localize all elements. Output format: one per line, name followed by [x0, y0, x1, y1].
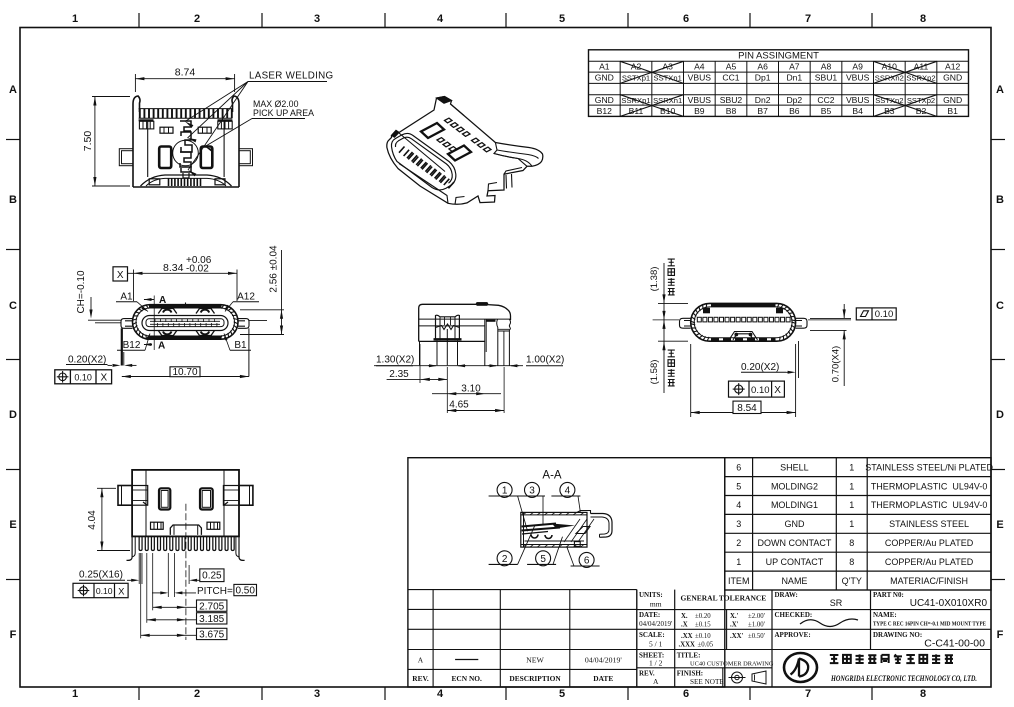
svg-text:3: 3 — [529, 486, 535, 497]
svg-text:±0.05: ±0.05 — [697, 642, 713, 649]
svg-text:PITCH=: PITCH= — [197, 586, 233, 597]
svg-text:mm: mm — [650, 600, 662, 609]
svg-text:1.00(X2): 1.00(X2) — [526, 355, 564, 366]
svg-text:2: 2 — [736, 538, 741, 548]
svg-text:4.65: 4.65 — [449, 399, 469, 410]
svg-text:CH=-0.10: CH=-0.10 — [76, 270, 87, 314]
svg-text:.X: .X — [681, 622, 688, 629]
svg-text:X: X — [118, 586, 125, 597]
svg-text:-0.02: -0.02 — [186, 263, 209, 274]
svg-text:MOLDING1: MOLDING1 — [771, 500, 818, 510]
svg-text:3.675: 3.675 — [199, 630, 224, 641]
svg-text:04/04/2019': 04/04/2019' — [585, 656, 623, 665]
svg-text:8: 8 — [849, 538, 854, 548]
svg-text:6: 6 — [683, 13, 689, 25]
svg-text:GND: GND — [943, 95, 962, 105]
svg-text:GENERAL TOLERANCE: GENERAL TOLERANCE — [681, 594, 767, 603]
svg-text:1.30(X2): 1.30(X2) — [376, 354, 414, 365]
svg-text:MOLDING2: MOLDING2 — [771, 481, 818, 491]
svg-text:5: 5 — [559, 13, 565, 25]
svg-text:F: F — [10, 629, 17, 641]
svg-text:A5: A5 — [726, 62, 737, 72]
svg-text:A-A: A-A — [542, 470, 562, 482]
svg-text:Dp2: Dp2 — [786, 95, 802, 105]
svg-text:SR: SR — [830, 598, 843, 608]
svg-text:8: 8 — [920, 13, 926, 25]
svg-text:4.04: 4.04 — [87, 510, 98, 530]
svg-text:C: C — [996, 300, 1004, 312]
svg-text:B1: B1 — [234, 340, 247, 351]
svg-text:DATE:: DATE: — [639, 611, 660, 619]
svg-text:0.50: 0.50 — [235, 585, 255, 596]
svg-text:2.35: 2.35 — [389, 369, 409, 380]
svg-text:VBUS: VBUS — [688, 73, 712, 83]
svg-text:UC40 CUSTOMER DRAWING: UC40 CUSTOMER DRAWING — [690, 661, 774, 668]
svg-text:B12: B12 — [597, 106, 613, 116]
svg-text:GND: GND — [943, 73, 962, 83]
svg-text:D: D — [9, 409, 17, 421]
svg-text:B4: B4 — [852, 106, 863, 116]
svg-text:SEE NOTE: SEE NOTE — [690, 678, 724, 686]
svg-text:8.54: 8.54 — [737, 403, 757, 414]
svg-text:E: E — [9, 519, 16, 531]
svg-text:GND: GND — [784, 519, 805, 529]
svg-text:SBU2: SBU2 — [720, 95, 743, 105]
svg-text:1: 1 — [72, 688, 78, 700]
svg-text:1: 1 — [849, 519, 854, 529]
svg-text:X.: X. — [681, 613, 688, 620]
svg-text:A: A — [159, 295, 166, 306]
svg-text:COPPER/Au PLATED: COPPER/Au PLATED — [885, 557, 974, 567]
svg-text:VBUS: VBUS — [846, 73, 870, 83]
svg-text:B1: B1 — [947, 106, 958, 116]
svg-text:A6: A6 — [757, 62, 768, 72]
svg-text:0.10: 0.10 — [751, 385, 770, 396]
svg-text:0.10: 0.10 — [74, 372, 92, 382]
svg-text:6: 6 — [584, 556, 590, 567]
svg-text:B8: B8 — [726, 106, 737, 116]
svg-text:A: A — [418, 655, 424, 664]
svg-text:.XX': .XX' — [730, 633, 744, 640]
svg-text:1: 1 — [736, 557, 741, 567]
svg-text:HONGRIDA ELECTRONIC TECHNOLOGY: HONGRIDA ELECTRONIC TECHNOLOGY CO, LTD. — [830, 674, 977, 683]
svg-text:Dn1: Dn1 — [786, 73, 802, 83]
svg-text:1: 1 — [849, 462, 854, 472]
svg-text:A12: A12 — [237, 291, 255, 302]
svg-text:PICK UP AREA: PICK UP AREA — [253, 108, 314, 118]
svg-text:8.34: 8.34 — [163, 262, 184, 274]
svg-text:GND: GND — [595, 73, 614, 83]
svg-text:Dn2: Dn2 — [755, 95, 771, 105]
svg-text:DOWN CONTACT: DOWN CONTACT — [758, 538, 832, 548]
svg-text:REV.: REV. — [412, 674, 429, 683]
svg-text:A: A — [996, 84, 1004, 96]
svg-text:DRAWING NO:: DRAWING NO: — [873, 631, 922, 639]
svg-text:C: C — [9, 300, 17, 312]
svg-text:±0.50': ±0.50' — [748, 633, 765, 640]
svg-text:.XXX: .XXX — [678, 642, 695, 649]
svg-text:A8: A8 — [821, 62, 832, 72]
svg-text:DATE: DATE — [593, 674, 613, 683]
svg-text:VBUS: VBUS — [688, 95, 712, 105]
svg-text:±2.00': ±2.00' — [748, 613, 765, 620]
svg-text:MATERIAC/FINISH: MATERIAC/FINISH — [890, 576, 968, 586]
svg-text:8: 8 — [849, 557, 854, 567]
svg-text:UP CONTACT: UP CONTACT — [766, 557, 824, 567]
svg-text:0.70(X4): 0.70(X4) — [830, 346, 841, 382]
svg-text:VBUS: VBUS — [846, 95, 870, 105]
svg-text:D: D — [996, 409, 1004, 421]
svg-text:LASER WELDING: LASER WELDING — [249, 70, 333, 81]
svg-text:4: 4 — [437, 688, 444, 700]
svg-text:A1: A1 — [599, 62, 610, 72]
svg-text:E: E — [996, 519, 1003, 531]
svg-text:.XX: .XX — [681, 633, 693, 640]
svg-text:FINISH:: FINISH: — [677, 670, 703, 678]
svg-text:5: 5 — [736, 481, 741, 491]
svg-text:8.74: 8.74 — [175, 66, 196, 78]
svg-text:2: 2 — [194, 688, 200, 700]
svg-text:0.10: 0.10 — [96, 586, 113, 596]
svg-text:0.25: 0.25 — [202, 571, 222, 582]
svg-text:3.185: 3.185 — [199, 614, 224, 625]
svg-text:7.50: 7.50 — [82, 131, 94, 152]
svg-text:±0.15: ±0.15 — [695, 622, 711, 629]
svg-text:NEW: NEW — [526, 656, 544, 665]
svg-text:GND: GND — [595, 95, 614, 105]
svg-text:0.25(X16): 0.25(X16) — [79, 569, 123, 580]
svg-text:TYPE C REC 16PIN CH=-0.1 MID M: TYPE C REC 16PIN CH=-0.1 MID MOUNT TYPE — [873, 622, 986, 628]
svg-text:X: X — [774, 385, 781, 396]
svg-text:THERMOPLASTIC UL94V-0: THERMOPLASTIC UL94V-0 — [871, 500, 988, 510]
svg-text:UC41-0X010XR0: UC41-0X010XR0 — [910, 598, 988, 609]
svg-text:±0.10: ±0.10 — [695, 633, 711, 640]
svg-text:ECN NO.: ECN NO. — [452, 674, 483, 683]
svg-text:6: 6 — [683, 688, 689, 700]
svg-text:DRAW:: DRAW: — [774, 591, 797, 599]
svg-text:SCALE:: SCALE: — [639, 631, 665, 639]
svg-text:B: B — [9, 194, 17, 206]
svg-text:Dp1: Dp1 — [755, 73, 771, 83]
svg-text:SHELL: SHELL — [780, 462, 809, 472]
svg-text:2: 2 — [194, 13, 200, 25]
svg-text:A7: A7 — [789, 62, 800, 72]
svg-text:6: 6 — [736, 462, 741, 472]
svg-text:COPPER/Au PLATED: COPPER/Au PLATED — [885, 538, 974, 548]
svg-text:2.705: 2.705 — [199, 601, 224, 612]
svg-text:1: 1 — [72, 13, 78, 25]
svg-text:DESCRIPTION: DESCRIPTION — [509, 674, 561, 683]
svg-text:10.70: 10.70 — [172, 367, 197, 378]
svg-text:F: F — [997, 629, 1004, 641]
svg-text:0.20(X2): 0.20(X2) — [68, 354, 106, 365]
svg-text:2: 2 — [502, 554, 508, 565]
svg-text:B12: B12 — [123, 340, 141, 351]
svg-text:CHECKED:: CHECKED: — [774, 611, 812, 619]
svg-text:1: 1 — [849, 481, 854, 491]
svg-text:A1: A1 — [120, 291, 133, 302]
svg-text:4: 4 — [736, 500, 741, 510]
svg-text:3: 3 — [314, 13, 320, 25]
svg-text:±0.20: ±0.20 — [695, 613, 711, 620]
svg-text:7: 7 — [805, 688, 811, 700]
svg-text:±1.00': ±1.00' — [748, 622, 765, 629]
svg-text:1 / 2: 1 / 2 — [649, 659, 663, 668]
svg-text:1: 1 — [849, 500, 854, 510]
svg-text:SBU1: SBU1 — [815, 73, 838, 83]
svg-text:(1.58): (1.58) — [649, 360, 660, 385]
svg-text:A9: A9 — [852, 62, 863, 72]
svg-text:Q'TY: Q'TY — [842, 576, 862, 586]
svg-text:A: A — [653, 677, 659, 686]
svg-text:8: 8 — [920, 688, 926, 700]
svg-text:NAME:: NAME: — [873, 611, 897, 619]
svg-text:4: 4 — [437, 13, 444, 25]
svg-text:7: 7 — [805, 13, 811, 25]
svg-text:APPROVE:: APPROVE: — [774, 631, 810, 639]
svg-text:STAINLESS STEEL/Ni PLATED: STAINLESS STEEL/Ni PLATED — [865, 462, 993, 472]
svg-text:ITEM: ITEM — [728, 576, 750, 586]
svg-text:STAINLESS STEEL: STAINLESS STEEL — [889, 519, 969, 529]
svg-text:4: 4 — [565, 486, 571, 497]
svg-text:B6: B6 — [789, 106, 800, 116]
svg-text:5 / 1: 5 / 1 — [649, 640, 663, 649]
svg-text:2.56 ±0.04: 2.56 ±0.04 — [269, 245, 280, 293]
svg-text:PART N0:: PART N0: — [873, 591, 904, 599]
svg-text:(1.38): (1.38) — [649, 267, 660, 292]
svg-text:PIN ASSINGMENT: PIN ASSINGMENT — [738, 50, 819, 61]
svg-text:A12: A12 — [945, 62, 961, 72]
svg-text:.X': .X' — [730, 622, 739, 629]
svg-text:3: 3 — [736, 519, 741, 529]
svg-text:NAME: NAME — [781, 576, 807, 586]
svg-text:B7: B7 — [757, 106, 768, 116]
svg-text:A4: A4 — [694, 62, 705, 72]
svg-text:1: 1 — [502, 486, 508, 497]
svg-text:B5: B5 — [821, 106, 832, 116]
svg-text:TITLE:: TITLE: — [677, 652, 701, 660]
svg-text:C-C41-00-00: C-C41-00-00 — [924, 638, 985, 650]
svg-text:A: A — [9, 84, 17, 96]
svg-text:X: X — [117, 270, 124, 281]
svg-text:X: X — [100, 373, 107, 384]
svg-text:B9: B9 — [694, 106, 705, 116]
svg-text:3: 3 — [314, 688, 320, 700]
svg-text:THERMOPLASTIC UL94V-0: THERMOPLASTIC UL94V-0 — [871, 481, 988, 491]
svg-text:CC1: CC1 — [722, 73, 739, 83]
svg-text:04/04/2019': 04/04/2019' — [639, 620, 672, 628]
svg-text:0.10: 0.10 — [875, 309, 894, 320]
svg-text:0.20(X2): 0.20(X2) — [741, 362, 779, 373]
svg-text:X.': X.' — [730, 613, 739, 620]
svg-text:5: 5 — [540, 554, 546, 565]
svg-text:5: 5 — [559, 688, 565, 700]
svg-text:B: B — [996, 194, 1004, 206]
svg-text:A: A — [158, 340, 165, 351]
svg-text:UNITS:: UNITS: — [639, 591, 663, 599]
svg-text:CC2: CC2 — [817, 95, 834, 105]
